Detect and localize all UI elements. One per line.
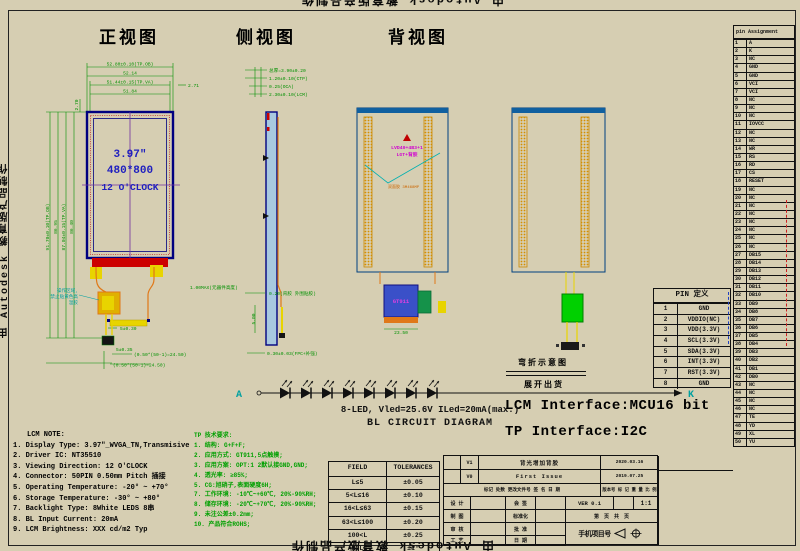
folded-stiffener bbox=[562, 294, 583, 322]
lcm-note-block: LCM NOTE: 1. Display Type: 3.97"_WVGA_TN… bbox=[13, 430, 197, 536]
tb-header-right: 版本号 标 记 重 量 比 例 bbox=[601, 484, 659, 497]
front-view-title: 正视图 bbox=[99, 23, 159, 48]
table-row: 44 NC bbox=[734, 389, 794, 397]
tb-cell bbox=[536, 536, 566, 546]
screen-clock-label: 12 O'CLOCK bbox=[101, 182, 158, 193]
table-row: 33 DB9 bbox=[734, 300, 794, 308]
wire-arrowhead bbox=[674, 390, 682, 397]
note-line: 3. Viewing Direction: 12 O'CLOCK bbox=[13, 462, 197, 473]
dim-label: 1.20±0.10(CTP) bbox=[269, 76, 308, 82]
dim-label: 86.95 bbox=[53, 220, 59, 234]
table-row: 35 DB7 bbox=[734, 316, 794, 324]
note-line: 2. 应用方式: GT911,5点触摸; bbox=[194, 451, 336, 461]
screen-size-label: 3.97″ bbox=[113, 149, 146, 161]
table-row: 11 IOVCC bbox=[734, 120, 794, 128]
note-line: 8. 储存环境: -20℃~+70℃, 20%-90%RH; bbox=[194, 500, 336, 510]
pin-definition-table: PIN 定义 1 GND 2 VDDIO(NC) 3 VDD(3.3V) bbox=[653, 288, 731, 388]
note-line: 10. 产品符合ROHS; bbox=[194, 520, 336, 530]
tb-header-left: 标记 处数 更改文件号 签 名 日 期 bbox=[444, 484, 601, 497]
table-row: 1 A bbox=[734, 39, 794, 47]
bl-diagram-title: BL CIRCUIT DIAGRAM bbox=[200, 418, 660, 429]
revision-date: 2019.07.25 bbox=[601, 470, 659, 484]
table-row: 4 GND bbox=[734, 63, 794, 71]
dim-label: 5±0.35 bbox=[116, 347, 133, 353]
note-line: 9. LCM Brightness: XXX cd/m2 Typ bbox=[13, 525, 197, 536]
table-row: 32 DB10 bbox=[734, 291, 794, 299]
table-row: 1 GND bbox=[654, 303, 730, 314]
terminal-circle bbox=[257, 391, 261, 395]
table-row: L≤5 ±0.05 bbox=[329, 476, 439, 489]
table-row: 3 NC bbox=[734, 55, 794, 63]
back-panel-right-topbar bbox=[512, 108, 605, 113]
table-row: 10 NC bbox=[734, 112, 794, 120]
scale-value: 1:1 bbox=[634, 497, 659, 510]
note-line: 2. Driver IC: NT35510 bbox=[13, 451, 197, 462]
screen-resolution-label: 480*800 bbox=[107, 165, 153, 177]
note-line: 1. 结构: G+F+F; bbox=[194, 441, 336, 451]
back-view-title: 背视图 bbox=[388, 23, 448, 48]
tb-cell bbox=[536, 523, 566, 536]
dim-label: 23.50 bbox=[394, 330, 408, 336]
projection-symbols-icon bbox=[614, 528, 646, 539]
tb-cell bbox=[471, 510, 506, 523]
note-line: 5. Operating Temperature: -20° ~ +70° bbox=[13, 483, 197, 494]
label-design: 设 计 bbox=[444, 497, 471, 510]
label-approve: 批 准 bbox=[506, 523, 536, 536]
table-row: 8 NC bbox=[734, 96, 794, 104]
table-row: 14 WR bbox=[734, 145, 794, 153]
pages-cell: 第 页 共 页 bbox=[566, 510, 659, 523]
dim-label: 5±0.30 bbox=[120, 326, 137, 332]
back-panel-left-topbar bbox=[357, 108, 448, 113]
table-row: 42 DB0 bbox=[734, 373, 794, 381]
leader-mark-blue bbox=[728, 292, 729, 344]
tolerance-table: FIELD TOLERANCES L≤5 ±0.05 5<L≤16 ±0.10 … bbox=[328, 461, 440, 551]
table-row: 19 NC bbox=[734, 186, 794, 194]
table-row: 2 K bbox=[734, 47, 794, 55]
dim-label: 2.70 bbox=[74, 99, 80, 110]
dim-label: 87.04±0.15(TP.VA) bbox=[61, 204, 67, 251]
table-row: 5 GND bbox=[734, 72, 794, 80]
dim-label: (0.50*(50-1)=24.50) bbox=[113, 363, 165, 369]
bend-connector-ear bbox=[582, 344, 585, 347]
tp-note-block: TP 技术要求: 1. 结构: G+F+F;2. 应用方式: GT911,5点触… bbox=[194, 431, 336, 530]
label-countersign: 会 签 bbox=[506, 497, 536, 510]
table-row: 12 NC bbox=[734, 129, 794, 137]
table-row: 30 DB12 bbox=[734, 275, 794, 283]
engineering-drawing-sheet: 由 Autodesk 教育版产品制作 由 Autodesk 教育版产品制作 由 … bbox=[0, 0, 800, 551]
table-row: 27 DB15 bbox=[734, 251, 794, 259]
dim-label: 0.20(背胶 外围贴胶) bbox=[269, 290, 316, 297]
table-row: 2 VDDIO(NC) bbox=[654, 314, 730, 325]
table-row: 39 DB3 bbox=[734, 348, 794, 356]
table-row: 37 DB5 bbox=[734, 332, 794, 340]
dim-label: 2.30±0.10(LCM) bbox=[269, 92, 308, 98]
table-row: 16 RD bbox=[734, 161, 794, 169]
touch-ic-label: GT911 bbox=[393, 298, 410, 305]
label-check: 审 核 bbox=[444, 523, 471, 536]
dim-label: 91.70±0.10(TP.OB) bbox=[45, 204, 51, 251]
table-row: 31 DB11 bbox=[734, 283, 794, 291]
dim-label: 2.71 bbox=[188, 83, 199, 89]
table-row: 48 YD bbox=[734, 422, 794, 430]
dim-label: 总厚=3.90±0.20 bbox=[269, 67, 306, 74]
tolerance-rows: L≤5 ±0.05 5<L≤16 ±0.10 16<L≤63 ±0.15 63<… bbox=[329, 476, 439, 551]
title-block: V1 背光增加背胶 2020.03.16 V0 First Issue 2019… bbox=[443, 455, 658, 545]
double-rule bbox=[506, 371, 586, 376]
ctp-pad bbox=[438, 301, 446, 313]
tape-note: 双面胶 3M468MP bbox=[388, 183, 420, 190]
label-craft: 工 艺 bbox=[444, 536, 471, 546]
note-line: 5. CG:旭硝子,表面硬度6H; bbox=[194, 481, 336, 491]
table-row: 5<L≤16 ±0.10 bbox=[329, 489, 439, 502]
tolerance-header: FIELD TOLERANCES bbox=[329, 462, 439, 476]
table-row: 22 NC bbox=[734, 210, 794, 218]
note-line: 4. 透光率: ≥85%; bbox=[194, 471, 336, 481]
tb-cell bbox=[536, 497, 566, 510]
note-line: 7. Backlight Type: 8White LEDS 8串 bbox=[13, 504, 197, 515]
revision-mark: V0 bbox=[461, 470, 479, 484]
table-row: 50 YU bbox=[734, 438, 794, 446]
note-line: 7. 工作环境: -10℃~+60℃, 20%-90%RH; bbox=[194, 490, 336, 500]
revision-date: 2020.03.16 bbox=[601, 456, 659, 470]
dim-label: 86.40 bbox=[69, 220, 75, 234]
side-seal-mark bbox=[267, 113, 270, 120]
pin-definition-rows: 1 GND 2 VDDIO(NC) 3 VDD(3.3V) 4 SCL(3.3V… bbox=[654, 303, 730, 389]
back-label: LVD40+4B3+1 bbox=[391, 145, 423, 151]
table-row: ANGLE ±1° bbox=[329, 542, 439, 551]
bend-connector-ear bbox=[556, 344, 559, 347]
svg-text:操作区域,: 操作区域, bbox=[57, 287, 78, 294]
fpc-cross-bar bbox=[110, 320, 147, 326]
title-block-extension-line bbox=[658, 470, 733, 471]
table-row: 18 RESET bbox=[734, 177, 794, 185]
table-row: 41 DB1 bbox=[734, 365, 794, 373]
fpc-gold-area bbox=[102, 296, 114, 310]
watermark-top: 由 Autodesk 教育版产品制作 bbox=[300, 0, 504, 9]
dimension-lines bbox=[245, 67, 267, 353]
dim-label: 51.84 bbox=[123, 89, 137, 95]
table-row: 40 DB2 bbox=[734, 356, 794, 364]
back-label: LGT+背胶 bbox=[396, 151, 417, 158]
tb-cell bbox=[471, 523, 506, 536]
table-row: 16<L≤63 ±0.15 bbox=[329, 502, 439, 515]
tb-cell bbox=[536, 510, 566, 523]
side-view-title: 侧视图 bbox=[236, 23, 296, 48]
note-line: 4. Connector: 50PIN 0.50mm Pitch 插接 bbox=[13, 472, 197, 483]
tp-note-title: TP 技术要求: bbox=[194, 431, 336, 441]
col-header-tolerances: TOLERANCES bbox=[387, 462, 439, 476]
adhesive-tape-right bbox=[581, 117, 589, 267]
project-number-label: 手机项目号 bbox=[578, 529, 611, 539]
table-row: 34 DB8 bbox=[734, 308, 794, 316]
tb-cell bbox=[614, 497, 634, 510]
table-row: 6 VCI bbox=[734, 80, 794, 88]
leader-mark-red bbox=[786, 200, 787, 346]
fpc-connector bbox=[102, 336, 114, 345]
adhesive-tape-left bbox=[364, 117, 372, 267]
svg-text:禁止贴黄色高: 禁止贴黄色高 bbox=[50, 293, 78, 300]
side-fpc-line bbox=[278, 117, 281, 307]
note-line: 9. 未注公差±0.2mm; bbox=[194, 510, 336, 520]
table-row: 26 NC bbox=[734, 243, 794, 251]
fpc-pad-right bbox=[150, 265, 163, 277]
bl-spec-text: 8-LED, Vled=25.6V ILed=20mA(max.) bbox=[200, 405, 660, 415]
table-row: 100<L ±0.25 bbox=[329, 529, 439, 542]
pin-assignment-title: pin Assignment bbox=[734, 26, 794, 39]
ctp-component bbox=[418, 291, 431, 313]
revision-mark: V1 bbox=[461, 456, 479, 470]
label-draw: 制 图 bbox=[444, 510, 471, 523]
side-seal-mark bbox=[267, 127, 270, 131]
table-row: 8 GND bbox=[654, 378, 730, 389]
note-line: 6. Storage Temperature: -30° ~ +80° bbox=[13, 494, 197, 505]
anode-label: A bbox=[236, 390, 242, 401]
dim-label: 51.44±0.15(TP.VA) bbox=[107, 80, 154, 86]
table-row: 5 SDA(3.3V) bbox=[654, 346, 730, 357]
dim-label: (0.50*(50-1)=24.50) bbox=[134, 352, 186, 358]
pin-assignment-rows: 1 A 2 K 3 NC 4 GND 5 bbox=[734, 39, 794, 446]
tb-cell bbox=[471, 536, 506, 546]
lcm-note-title: LCM NOTE: bbox=[13, 430, 197, 441]
table-row: 45 NC bbox=[734, 397, 794, 405]
warning-triangle-icon bbox=[403, 134, 411, 141]
dim-label: 52.14 bbox=[123, 71, 137, 77]
table-row: 17 CS bbox=[734, 169, 794, 177]
table-row: 63<L≤100 ±0.20 bbox=[329, 516, 439, 529]
table-row: 3 VDD(3.3V) bbox=[654, 324, 730, 335]
table-row: 43 NC bbox=[734, 381, 794, 389]
bl-circuit-diagram: A K bbox=[230, 378, 710, 408]
table-row: 29 DB13 bbox=[734, 267, 794, 275]
adhesive-tape-right bbox=[424, 117, 432, 267]
dim-label: 0.30±0.03(FPC+补强) bbox=[267, 350, 318, 357]
bend-diagram-title: 弯折示意图 bbox=[518, 357, 568, 368]
tb-cell bbox=[471, 497, 506, 510]
note-line: 1. Display Type: 3.97"_WVGA_TN,Transmisi… bbox=[13, 441, 197, 452]
revision-desc: 背光增加背胶 bbox=[479, 456, 601, 470]
tb-cell bbox=[444, 456, 461, 470]
lcm-note-lines: 1. Display Type: 3.97"_WVGA_TN,Transmisi… bbox=[13, 441, 197, 536]
ctp-fpc-strip bbox=[384, 317, 418, 323]
svg-text:温胶: 温胶 bbox=[69, 299, 79, 306]
project-cell: 手机项目号 bbox=[566, 523, 659, 545]
bend-connector bbox=[561, 342, 579, 350]
table-row: 47 TE bbox=[734, 413, 794, 421]
table-row: 20 NC bbox=[734, 194, 794, 202]
label-date: 日 期 bbox=[506, 536, 536, 546]
dim-label: 0.25(OCA) bbox=[269, 84, 294, 90]
col-header-field: FIELD bbox=[329, 462, 387, 476]
table-row: 7 VCI bbox=[734, 88, 794, 96]
side-connector bbox=[279, 333, 285, 338]
table-row: 7 RST(3.3V) bbox=[654, 367, 730, 378]
label-standard: 标准化 bbox=[506, 510, 536, 523]
version-value: VER 0.1 bbox=[566, 497, 614, 510]
tp-note-lines: 1. 结构: G+F+F;2. 应用方式: GT911,5点触摸;3. 应用方案… bbox=[194, 441, 336, 530]
table-row: 28 DB14 bbox=[734, 259, 794, 267]
table-row: 15 RS bbox=[734, 153, 794, 161]
table-row: 13 NC bbox=[734, 137, 794, 145]
fpc-dot bbox=[107, 319, 110, 322]
tb-cell bbox=[444, 470, 461, 484]
front-view-drawing: 52.80±0.10(TP.OB) 52.14 51.44±0.15(TP.VA… bbox=[20, 55, 235, 405]
pin-definition-title: PIN 定义 bbox=[654, 289, 730, 303]
table-row: 46 NC bbox=[734, 405, 794, 413]
table-row: 6 INT(3.3V) bbox=[654, 356, 730, 367]
module-side-profile bbox=[266, 112, 277, 345]
revision-desc: First Issue bbox=[479, 470, 601, 484]
table-row: 4 SCL(3.3V) bbox=[654, 335, 730, 346]
side-view-drawing: 总厚=3.90±0.20 1.20±0.10(CTP) 0.25(OCA) 2.… bbox=[225, 55, 340, 405]
table-row: 24 NC bbox=[734, 226, 794, 234]
fpc-dot bbox=[147, 319, 150, 322]
dim-label: 52.80±0.10(TP.OB) bbox=[107, 62, 154, 68]
table-row: 23 NC bbox=[734, 218, 794, 226]
table-row: 38 DB4 bbox=[734, 340, 794, 348]
table-row: 9 NC bbox=[734, 104, 794, 112]
cathode-label: K bbox=[688, 390, 694, 401]
watermark-left: 由 Autodesk 教育版产品制作 bbox=[0, 162, 13, 338]
table-row: 36 DB6 bbox=[734, 324, 794, 332]
note-line: 8. BL Input Current: 20mA bbox=[13, 515, 197, 526]
note-line: 3. 应用方案: OPT:1 2默认接GND,GND; bbox=[194, 461, 336, 471]
adhesive-tape-left bbox=[519, 117, 527, 267]
dim-label: 5.00 bbox=[251, 313, 257, 324]
table-row: 25 NC bbox=[734, 234, 794, 242]
table-row: 21 NC bbox=[734, 202, 794, 210]
table-row: 49 XL bbox=[734, 430, 794, 438]
